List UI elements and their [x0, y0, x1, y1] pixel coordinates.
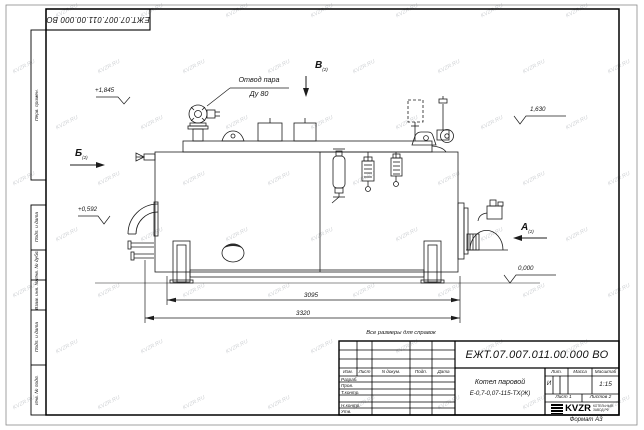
drawing-sheet: KVZR.RUKVZR.RUKVZR.RUKVZR.RUKVZR.RUKVZR.… [0, 0, 644, 430]
sheets-value: 2 [609, 395, 612, 400]
margin-cell-label: Инв. № подл. [32, 360, 44, 420]
product-name-line2: Е-0,7-0,07-115-ТХ(Ж) [455, 391, 545, 398]
margin-cell-label: Подп. и дата [32, 307, 44, 367]
tb-row-prov: Пров. [341, 383, 353, 388]
view-marker-a: А(2) [521, 222, 534, 235]
view-marker-b: Б(2) [75, 148, 88, 161]
elevation-marks [78, 97, 566, 283]
company-logo: KVZR КОТЕЛЬНЫЙ ЗАВОД.РФ [546, 402, 618, 415]
tb-row-tkontr: Т.контр. [341, 390, 360, 395]
lit-label: Лит. [545, 369, 568, 374]
margin-first-use-label: Перв. примен. [32, 65, 44, 145]
sheet-cell: Лист 1 [545, 395, 582, 400]
view-ref: (2) [528, 229, 534, 234]
steam-valve-icon [188, 105, 220, 141]
title-doc-number: ЕЖТ.07.007.011.00.000 ВО [455, 341, 619, 368]
scale-label: Масштаб [592, 369, 619, 374]
steam-outlet-label-line2: Ду 80 [227, 90, 291, 98]
tb-row-nkontr: Н.контр. [341, 403, 360, 408]
reference-note: Все размеры для справок [353, 330, 449, 336]
top-stamp-doc-number: ЕЖТ.07.007.011.00.000 ВО [46, 9, 150, 30]
kvzr-logo-icon [551, 404, 563, 414]
view-ref: (2) [82, 155, 88, 160]
elevation-ground: 0,000 [518, 266, 533, 273]
kvzr-logo-caption: КОТЕЛЬНЫЙ ЗАВОД.РФ [593, 405, 613, 412]
logo-caption-line2: ЗАВОД.РФ [593, 409, 613, 413]
feed-pump-icon [458, 200, 508, 259]
elevation-burner: +0,592 [78, 207, 97, 214]
product-name-line1: Котел паровой [455, 379, 545, 387]
sheet-label: Лист [555, 395, 567, 400]
dimension-overall-length: 3320 [285, 310, 321, 317]
dimension-inner-length: 3095 [293, 292, 329, 299]
level-indicator-icon [362, 152, 374, 192]
elevation-rear: 1,630 [530, 107, 545, 114]
tb-col-list: Лист [357, 369, 372, 374]
water-gauge-icon [332, 149, 345, 203]
sheet-value: 1 [569, 395, 572, 400]
sheets-cell: Листов 2 [582, 395, 619, 400]
tb-row-razrab: Разраб. [341, 377, 358, 382]
view-ref: (2) [322, 67, 328, 72]
scale-value: 1:15 [592, 381, 619, 388]
tb-col-podp: Подп. [410, 369, 432, 374]
tb-col-ndocum: N докум. [372, 369, 410, 374]
level-indicator2-icon [391, 152, 402, 187]
mass-label: Масса [568, 369, 592, 374]
tb-col-izm: Изм. [339, 369, 357, 374]
tb-col-data: Дата [432, 369, 455, 374]
boiler-drawing [95, 96, 540, 283]
steam-outlet-label-line1: Отвод пара [227, 76, 291, 84]
sheets-label: Листов [590, 395, 607, 400]
kvzr-logo-text: KVZR [565, 403, 591, 414]
lit-value: И [545, 381, 553, 388]
format-label: Формат А3 [556, 417, 616, 424]
view-marker-v: В(2) [315, 60, 328, 73]
elevation-valve-top: +1,845 [95, 88, 114, 95]
tb-row-utv: Утв. [341, 409, 351, 414]
